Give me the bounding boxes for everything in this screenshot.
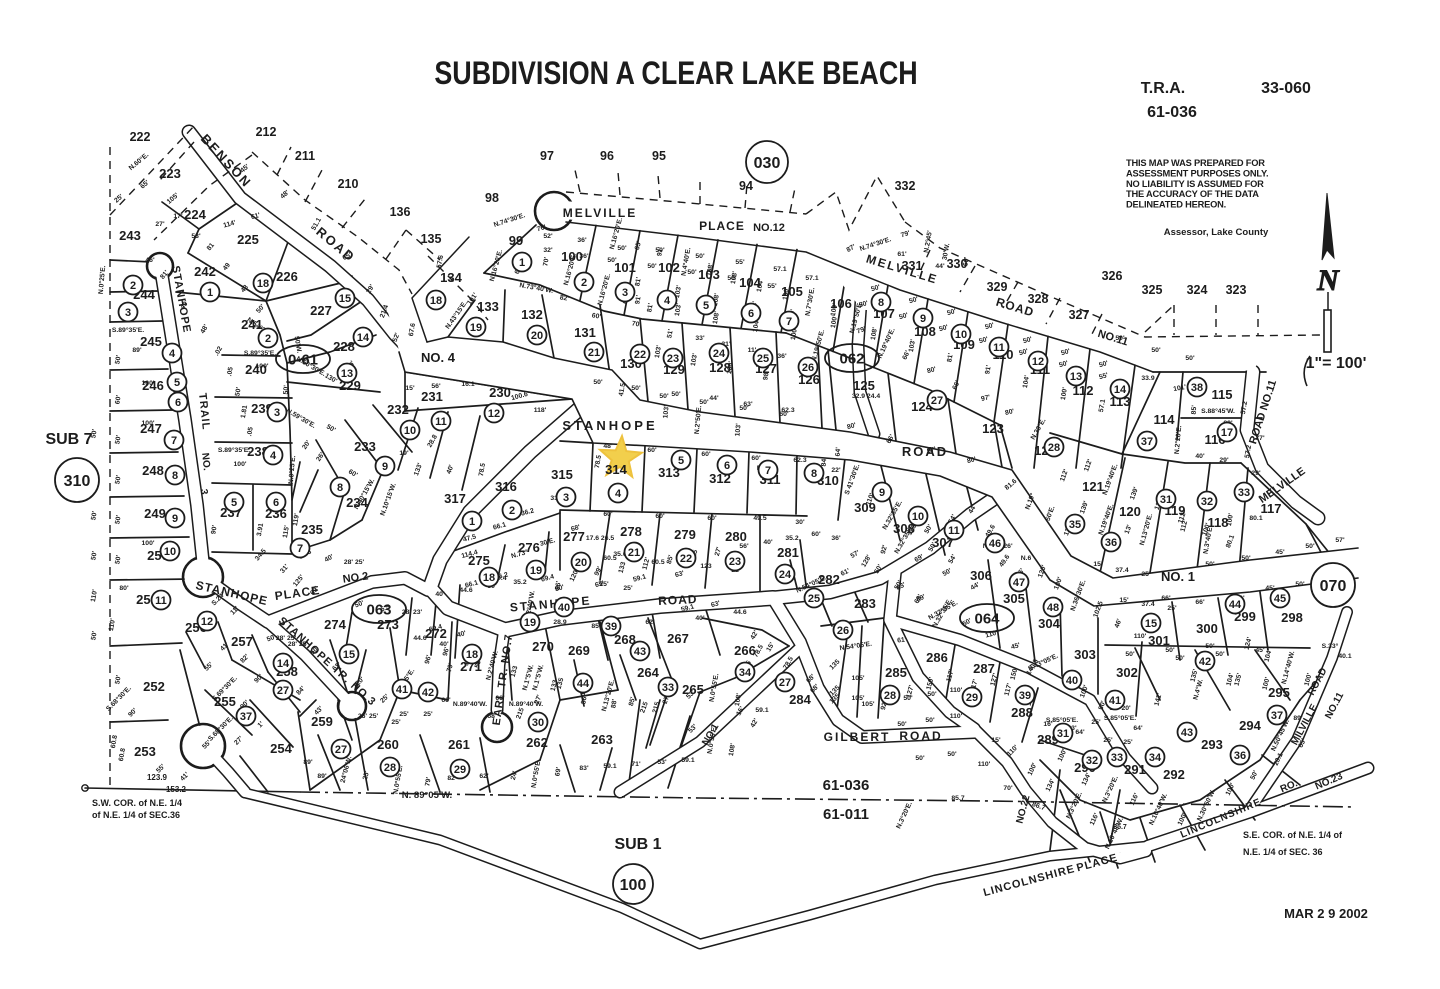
svg-text:10: 10 <box>164 546 176 558</box>
svg-text:13: 13 <box>341 368 353 380</box>
svg-text:125: 125 <box>853 378 875 393</box>
svg-text:242: 242 <box>194 264 216 279</box>
svg-text:S.89°35'E.: S.89°35'E. <box>244 349 276 357</box>
svg-text:89': 89' <box>317 773 327 780</box>
svg-text:329: 329 <box>987 280 1008 294</box>
svg-text:260: 260 <box>377 737 399 752</box>
svg-text:12: 12 <box>201 616 213 628</box>
svg-text:8: 8 <box>811 468 817 480</box>
svg-text:4: 4 <box>169 348 176 360</box>
svg-text:133: 133 <box>477 299 499 314</box>
svg-text:33': 33' <box>695 335 705 342</box>
svg-text:45': 45' <box>1275 549 1285 556</box>
svg-text:135: 135 <box>421 232 442 246</box>
svg-text:324: 324 <box>1187 283 1208 297</box>
svg-text:110': 110' <box>950 687 963 694</box>
svg-text:16.1: 16.1 <box>461 381 474 388</box>
svg-text:50': 50' <box>1115 335 1125 342</box>
svg-text:300: 300 <box>1196 621 1218 636</box>
svg-text:50': 50' <box>1175 655 1185 662</box>
svg-text:267: 267 <box>667 631 689 646</box>
svg-text:225: 225 <box>237 232 259 247</box>
svg-text:S.85°05'E.: S.85°05'E. <box>1104 714 1136 722</box>
svg-text:288: 288 <box>1011 705 1033 720</box>
svg-text:22: 22 <box>680 553 692 565</box>
svg-text:GILBERT: GILBERT <box>824 730 891 744</box>
svg-text:063: 063 <box>366 602 391 619</box>
svg-text:50': 50' <box>1205 643 1215 650</box>
svg-text:PLACE: PLACE <box>699 219 745 233</box>
svg-text:136: 136 <box>390 205 411 219</box>
svg-text:293: 293 <box>1201 737 1223 752</box>
svg-text:57.1: 57.1 <box>805 275 818 282</box>
svg-text:60': 60' <box>779 411 789 418</box>
svg-text:100: 100 <box>620 877 647 894</box>
svg-text:39: 39 <box>1019 690 1031 702</box>
svg-text:245: 245 <box>140 334 162 349</box>
svg-text:285: 285 <box>885 665 907 680</box>
svg-text:50': 50' <box>1125 651 1135 658</box>
svg-text:315: 315 <box>551 467 573 482</box>
svg-text:7: 7 <box>786 316 792 328</box>
svg-text:S.W. COR. of N.E. 1/4: S.W. COR. of N.E. 1/4 <box>92 798 182 808</box>
svg-text:43: 43 <box>634 646 646 658</box>
svg-text:27: 27 <box>779 677 791 689</box>
svg-text:89': 89' <box>1293 715 1303 722</box>
svg-text:4: 4 <box>664 295 671 307</box>
svg-text:306: 306 <box>970 568 992 583</box>
svg-text:12: 12 <box>488 408 500 420</box>
svg-text:326: 326 <box>1102 269 1123 283</box>
svg-text:37: 37 <box>1141 436 1153 448</box>
svg-text:40': 40' <box>435 591 445 598</box>
svg-text:305: 305 <box>1003 591 1025 606</box>
svg-text:14: 14 <box>277 658 290 670</box>
svg-text:153.2: 153.2 <box>166 785 187 794</box>
svg-text:8: 8 <box>878 297 884 309</box>
svg-text:9: 9 <box>879 487 885 499</box>
svg-text:56': 56' <box>431 383 441 390</box>
svg-text:284: 284 <box>789 692 811 707</box>
svg-text:2: 2 <box>130 280 136 292</box>
svg-text:120: 120 <box>1119 504 1141 519</box>
svg-text:25: 25 <box>808 593 820 605</box>
svg-text:103': 103' <box>662 405 670 419</box>
svg-text:1: 1 <box>519 257 525 269</box>
svg-text:33: 33 <box>1111 752 1123 764</box>
svg-text:50': 50' <box>659 393 669 400</box>
svg-text:115: 115 <box>1212 387 1233 402</box>
svg-text:23: 23 <box>729 556 741 568</box>
svg-text:25': 25' <box>623 585 633 592</box>
svg-text:316: 316 <box>495 479 517 494</box>
svg-text:226: 226 <box>276 269 298 284</box>
svg-text:ROAD: ROAD <box>899 729 942 743</box>
svg-text:121: 121 <box>1082 479 1104 494</box>
svg-text:332: 332 <box>895 179 916 193</box>
svg-text:37: 37 <box>1271 710 1283 722</box>
svg-text:123: 123 <box>982 421 1004 436</box>
svg-text:212: 212 <box>256 125 277 139</box>
svg-text:25': 25' <box>399 711 409 718</box>
svg-text:3: 3 <box>125 307 131 319</box>
svg-text:18: 18 <box>483 572 495 584</box>
svg-text:25': 25' <box>423 711 433 718</box>
svg-text:94: 94 <box>739 179 753 193</box>
svg-text:254: 254 <box>270 741 292 756</box>
svg-text:59.1: 59.1 <box>603 763 616 770</box>
svg-text:298: 298 <box>1281 610 1303 625</box>
svg-text:29: 29 <box>966 692 978 704</box>
svg-text:323: 323 <box>1226 283 1247 297</box>
svg-text:50': 50' <box>739 405 749 412</box>
svg-text:42: 42 <box>1199 656 1211 668</box>
svg-text:1: 1 <box>469 516 475 528</box>
svg-text:50': 50' <box>727 275 737 282</box>
svg-text:280: 280 <box>725 529 747 544</box>
svg-text:ROAD: ROAD <box>902 444 948 459</box>
svg-text:10: 10 <box>955 329 967 341</box>
svg-text:14: 14 <box>1114 384 1127 396</box>
svg-text:89': 89' <box>132 347 142 354</box>
svg-text:60': 60' <box>647 447 657 454</box>
svg-text:20: 20 <box>531 330 543 342</box>
svg-text:98: 98 <box>485 191 499 205</box>
svg-text:40.1: 40.1 <box>1338 653 1351 660</box>
svg-text:62': 62' <box>479 773 489 780</box>
svg-text:279: 279 <box>674 527 696 542</box>
svg-text:7: 7 <box>171 435 177 447</box>
svg-text:57.1: 57.1 <box>773 266 786 273</box>
svg-text:41: 41 <box>396 684 408 696</box>
svg-text:28: 28 <box>384 762 396 774</box>
svg-text:50': 50' <box>1205 561 1215 568</box>
svg-text:14: 14 <box>357 332 370 344</box>
svg-text:11: 11 <box>948 525 960 537</box>
svg-text:327: 327 <box>1069 308 1090 322</box>
svg-text:N.89°40'W.: N.89°40'W. <box>509 700 543 708</box>
svg-text:9: 9 <box>172 513 178 525</box>
svg-text:7: 7 <box>297 543 303 555</box>
svg-text:292: 292 <box>1163 767 1185 782</box>
svg-text:NO.12: NO.12 <box>753 222 785 234</box>
svg-text:30: 30 <box>532 717 544 729</box>
svg-text:9: 9 <box>920 313 926 325</box>
svg-text:062: 062 <box>839 351 864 368</box>
svg-text:33: 33 <box>1238 487 1250 499</box>
svg-text:NO LIABILITY IS ASSUMED FOR: NO LIABILITY IS ASSUMED FOR <box>1126 179 1264 189</box>
svg-text:328: 328 <box>1028 292 1049 306</box>
svg-text:38: 38 <box>1191 382 1203 394</box>
svg-text:24: 24 <box>713 348 726 360</box>
svg-text:29: 29 <box>454 764 466 776</box>
svg-text:223: 223 <box>159 166 181 181</box>
svg-text:15': 15' <box>1119 597 1129 604</box>
svg-text:50': 50' <box>1151 347 1161 354</box>
svg-text:248: 248 <box>142 463 164 478</box>
svg-text:THIS MAP WAS PREPARED FOR: THIS MAP WAS PREPARED FOR <box>1126 158 1265 168</box>
svg-text:60': 60' <box>701 451 711 458</box>
svg-text:60': 60' <box>603 511 613 518</box>
svg-text:262: 262 <box>526 735 548 750</box>
svg-text:45': 45' <box>1255 647 1265 654</box>
svg-text:N.89°40'W.: N.89°40'W. <box>453 700 487 708</box>
svg-text:83': 83' <box>579 765 589 772</box>
svg-text:80': 80' <box>119 585 129 592</box>
svg-text:15': 15' <box>991 737 1001 744</box>
svg-text:249: 249 <box>144 506 166 521</box>
svg-text:32: 32 <box>1201 496 1213 508</box>
svg-text:52': 52' <box>543 233 553 240</box>
svg-text:N.E. 1/4 of SEC. 36: N.E. 1/4 of SEC. 36 <box>1243 847 1323 857</box>
svg-text:NO. 1: NO. 1 <box>1161 569 1195 584</box>
svg-text:62': 62' <box>645 619 655 626</box>
svg-text:232: 232 <box>387 402 409 417</box>
svg-text:11: 11 <box>435 416 447 428</box>
svg-text:97: 97 <box>540 149 554 163</box>
svg-text:32.9 24.4: 32.9 24.4 <box>852 393 881 400</box>
svg-text:SUB 1: SUB 1 <box>614 836 661 853</box>
svg-text:85': 85' <box>1191 405 1199 415</box>
svg-text:N. 89°05'W.: N. 89°05'W. <box>402 790 452 801</box>
svg-text:66': 66' <box>441 697 451 704</box>
svg-text:28.9: 28.9 <box>553 619 566 626</box>
svg-text:of N.E. 1/4 of SEC.36: of N.E. 1/4 of SEC.36 <box>92 810 180 820</box>
svg-text:99: 99 <box>509 233 523 248</box>
svg-text:100': 100' <box>256 363 269 370</box>
svg-text:211: 211 <box>295 149 315 163</box>
svg-text:243: 243 <box>119 228 141 243</box>
svg-text:123: 123 <box>700 563 712 570</box>
svg-text:50': 50' <box>1241 555 1251 562</box>
svg-text:278: 278 <box>620 524 642 539</box>
svg-text:31: 31 <box>1160 494 1172 506</box>
svg-text:100': 100' <box>142 540 155 547</box>
svg-text:3: 3 <box>563 492 569 504</box>
svg-text:40: 40 <box>558 602 570 614</box>
svg-text:132: 132 <box>521 307 543 322</box>
svg-text:40': 40' <box>763 539 773 546</box>
svg-text:6: 6 <box>175 397 181 409</box>
svg-text:ASSESSMENT PURPOSES ONLY.: ASSESSMENT PURPOSES ONLY. <box>1126 168 1268 178</box>
svg-text:MELVILLE: MELVILLE <box>563 206 637 220</box>
svg-text:5: 5 <box>678 455 684 467</box>
svg-text:286: 286 <box>926 650 948 665</box>
svg-text:283: 283 <box>854 596 876 611</box>
svg-text:235: 235 <box>301 522 323 537</box>
svg-text:50': 50' <box>617 245 627 252</box>
svg-text:50': 50' <box>925 717 935 724</box>
svg-text:62.3: 62.3 <box>793 457 806 464</box>
svg-text:9: 9 <box>382 461 388 473</box>
svg-text:325: 325 <box>1142 283 1163 297</box>
svg-text:20: 20 <box>575 557 587 569</box>
svg-text:40': 40' <box>439 641 449 648</box>
svg-text:1"= 100': 1"= 100' <box>1306 355 1367 372</box>
svg-text:18: 18 <box>430 295 442 307</box>
svg-text:25': 25' <box>599 581 609 588</box>
svg-text:95: 95 <box>652 149 666 163</box>
svg-text:22': 22' <box>831 467 841 474</box>
svg-text:102: 102 <box>658 260 680 275</box>
svg-text:50': 50' <box>283 385 291 395</box>
svg-text:8: 8 <box>172 470 178 482</box>
svg-text:36': 36' <box>579 253 589 260</box>
svg-text:55': 55' <box>767 283 777 290</box>
svg-text:50': 50' <box>647 263 657 270</box>
svg-text:295: 295 <box>1268 685 1290 700</box>
svg-text:15: 15 <box>339 293 351 305</box>
svg-text:NO.: NO. <box>199 452 212 471</box>
svg-text:17: 17 <box>1221 427 1233 439</box>
svg-text:117: 117 <box>1261 501 1282 516</box>
svg-text:89': 89' <box>303 759 313 766</box>
svg-text:85': 85' <box>591 623 601 630</box>
svg-text:28: 28 <box>884 690 896 702</box>
svg-text:233: 233 <box>354 439 376 454</box>
svg-text:43: 43 <box>1181 727 1193 739</box>
svg-text:49.5: 49.5 <box>753 515 766 522</box>
svg-text:0-61: 0-61 <box>288 352 318 369</box>
svg-text:44': 44' <box>935 263 945 270</box>
svg-text:317: 317 <box>444 491 466 506</box>
svg-text:56': 56' <box>739 543 749 550</box>
svg-text:48: 48 <box>1047 602 1059 614</box>
svg-text:27: 27 <box>277 685 289 697</box>
svg-text:27: 27 <box>335 744 347 756</box>
svg-text:105': 105' <box>862 701 875 708</box>
svg-text:53': 53' <box>657 759 667 766</box>
svg-text:3: 3 <box>622 287 628 299</box>
svg-text:60.5: 60.5 <box>651 559 664 566</box>
svg-text:50': 50' <box>695 253 705 260</box>
svg-text:29': 29' <box>1219 457 1229 464</box>
svg-text:44.6: 44.6 <box>733 609 746 616</box>
svg-text:227: 227 <box>310 303 332 318</box>
svg-text:10: 10 <box>912 511 924 523</box>
svg-text:210: 210 <box>338 177 359 191</box>
svg-text:40': 40' <box>1195 453 1205 460</box>
svg-text:66': 66' <box>1161 595 1171 602</box>
svg-text:40': 40' <box>695 615 705 622</box>
svg-text:35: 35 <box>1069 519 1081 531</box>
svg-text:36': 36' <box>831 535 841 542</box>
svg-text:18: 18 <box>257 278 269 290</box>
svg-text:39: 39 <box>605 621 617 633</box>
svg-text:10: 10 <box>404 425 416 437</box>
svg-text:8: 8 <box>337 482 343 494</box>
svg-text:281: 281 <box>777 545 799 560</box>
svg-text:269: 269 <box>568 643 590 658</box>
svg-text:44': 44' <box>709 395 719 402</box>
svg-text:252: 252 <box>143 679 165 694</box>
svg-text:4: 4 <box>615 488 622 500</box>
svg-text:21: 21 <box>628 547 640 559</box>
svg-text:27': 27' <box>155 221 165 228</box>
svg-text:32: 32 <box>1086 755 1098 767</box>
svg-text:7: 7 <box>765 465 771 477</box>
svg-text:60': 60' <box>655 513 665 520</box>
svg-text:60': 60' <box>811 531 821 538</box>
svg-text:41: 41 <box>1109 695 1121 707</box>
svg-text:50': 50' <box>947 751 957 758</box>
svg-text:59.1: 59.1 <box>681 757 694 764</box>
svg-text:118': 118' <box>534 407 547 414</box>
svg-text:68': 68' <box>487 713 497 720</box>
svg-text:77': 77' <box>1255 435 1265 442</box>
svg-text:30': 30' <box>795 519 805 526</box>
svg-text:3: 3 <box>274 407 280 419</box>
svg-text:27: 27 <box>931 395 943 407</box>
svg-text:25': 25' <box>1141 571 1151 578</box>
svg-text:64': 64' <box>835 447 843 457</box>
svg-text:15': 15' <box>1093 561 1103 568</box>
svg-text:25: 25 <box>757 353 769 365</box>
svg-text:47: 47 <box>1013 577 1025 589</box>
svg-text:26: 26 <box>837 625 849 637</box>
svg-text:100': 100' <box>142 380 155 387</box>
svg-text:291: 291 <box>1124 762 1146 777</box>
svg-text:61-036: 61-036 <box>823 777 870 794</box>
svg-text:274: 274 <box>324 617 346 632</box>
svg-text:61-011: 61-011 <box>823 806 869 823</box>
svg-text:THE ACCURACY OF THE DATA: THE ACCURACY OF THE DATA <box>1126 189 1259 199</box>
svg-text:23: 23 <box>667 353 679 365</box>
svg-text:19: 19 <box>530 565 542 577</box>
svg-text:4: 4 <box>270 450 277 462</box>
svg-text:331: 331 <box>902 259 923 273</box>
svg-text:224: 224 <box>184 207 206 222</box>
svg-text:030: 030 <box>754 155 781 172</box>
svg-text:71': 71' <box>631 761 641 768</box>
svg-text:1: 1 <box>207 287 213 299</box>
svg-text:253: 253 <box>134 744 156 759</box>
svg-text:50': 50' <box>915 755 925 762</box>
svg-text:303: 303 <box>1074 647 1096 662</box>
svg-text:103': 103' <box>734 423 742 437</box>
svg-text:302: 302 <box>1116 665 1138 680</box>
svg-text:50': 50' <box>699 399 709 406</box>
svg-text:50': 50' <box>1295 581 1305 588</box>
svg-text:34: 34 <box>1149 752 1162 764</box>
svg-text:25': 25' <box>1123 739 1133 746</box>
svg-text:36': 36' <box>777 353 787 360</box>
svg-text:314: 314 <box>605 462 627 477</box>
svg-text:NO. 4: NO. 4 <box>421 350 456 365</box>
svg-text:29': 29' <box>1251 470 1261 477</box>
svg-text:17': 17' <box>173 213 183 220</box>
svg-text:110': 110' <box>1134 633 1147 640</box>
svg-text:26: 26 <box>802 362 814 374</box>
svg-text:261: 261 <box>448 737 470 752</box>
svg-text:15': 15' <box>405 385 415 392</box>
svg-text:53': 53' <box>191 233 201 240</box>
svg-text:96: 96 <box>600 149 614 163</box>
svg-text:S.88°45'W.: S.88°45'W. <box>1201 407 1235 415</box>
svg-text:12: 12 <box>1032 356 1044 368</box>
svg-text:44: 44 <box>577 678 590 690</box>
svg-text:19': 19' <box>399 450 409 457</box>
svg-text:36: 36 <box>1105 537 1117 549</box>
svg-text:T.R.A.: T.R.A. <box>1141 80 1185 97</box>
svg-text:5: 5 <box>231 497 237 509</box>
svg-text:257: 257 <box>231 634 253 649</box>
svg-text:80.1: 80.1 <box>1249 515 1262 522</box>
svg-text:61': 61' <box>897 251 907 258</box>
svg-text:230: 230 <box>489 385 511 400</box>
svg-text:100': 100' <box>234 461 247 468</box>
svg-text:15: 15 <box>1145 618 1157 630</box>
